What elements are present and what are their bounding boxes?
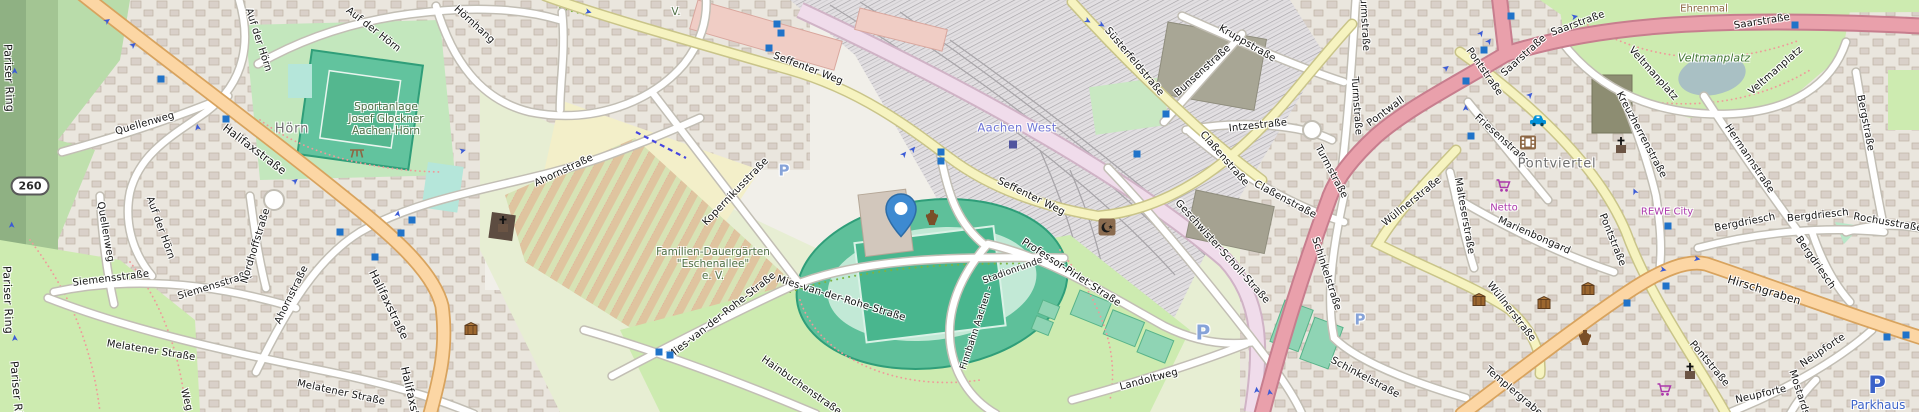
street-label: Claßenstraße: [1197, 129, 1251, 189]
street-label: Melatener Straße: [106, 338, 196, 363]
street-label: Ahornstraße: [533, 152, 595, 189]
street-label: Halifaxstraße: [366, 268, 411, 342]
transit-stop-marker: [1884, 334, 1891, 341]
oneway-arrow-icon: ➤: [9, 221, 18, 229]
street-label: Siemensstraße: [176, 269, 253, 303]
tower-icon: [1472, 292, 1486, 311]
street-label: Quellenweg: [114, 110, 176, 138]
transit-stop-marker: [766, 45, 773, 52]
street-label: Auf der Hörn: [242, 7, 273, 73]
area-label: V.: [671, 6, 680, 18]
transit-stop-marker: [1663, 283, 1670, 290]
transit-stop-marker: [1665, 223, 1672, 230]
area-label: Familien-Dauergärten "Eschenallee" e. V.: [656, 246, 770, 282]
station-dot-icon: [1009, 134, 1017, 153]
oneway-arrow-icon: ➤: [12, 67, 21, 75]
cinema-icon: [1520, 135, 1536, 154]
street-label: Finnbahn Aachen -: [959, 285, 996, 371]
oneway-arrow-icon: ➤: [128, 40, 140, 52]
street-label: Saarstraße: [1499, 33, 1549, 79]
place-label: Hörn: [275, 123, 309, 138]
oneway-arrow-icon: ➤: [394, 210, 404, 219]
oneway-arrow-icon: ➤: [1658, 266, 1667, 276]
street-label: Professor-Pirlet-Straße: [1019, 237, 1122, 310]
street-label: Hirschgraben: [1726, 274, 1802, 308]
church-icon: [1682, 362, 1698, 384]
tower-icon: [464, 321, 478, 340]
street-label: Stadionrunde: [982, 255, 1045, 286]
street-label: Wüllnerstraße: [1380, 175, 1444, 230]
street-label: Seffenter Weg: [771, 50, 844, 87]
street-label: Bergstraße: [1854, 94, 1876, 152]
street-label: Landoltweg: [1119, 367, 1180, 394]
street-label: Bergdriesch: [1787, 207, 1850, 225]
street-label: Mies-van-der-Rohe-Straße: [666, 270, 779, 362]
shop-label: Netto: [1490, 202, 1518, 214]
street-label: Templergraben: [1483, 365, 1550, 412]
street-label: Mostardstraße: [1786, 369, 1820, 412]
tower-icon: [1581, 281, 1595, 300]
map-pin-marker[interactable]: [883, 192, 919, 242]
street-label: Veltmanplatz: [1747, 44, 1806, 97]
oneway-arrow-icon: ➤: [1630, 186, 1641, 197]
oneway-arrow-icon: ➤: [1441, 63, 1453, 75]
memorial-label: Ehrenmal: [1680, 3, 1728, 15]
street-label: Schinkelstraße: [1309, 236, 1344, 312]
oneway-arrow-icon: ➤: [1253, 386, 1263, 394]
parking-label: Parkhaus: [1851, 399, 1906, 412]
street-label: Auf der Hörn: [343, 5, 402, 55]
street-label: Bergdriesch: [1793, 234, 1838, 291]
parking-label: P: [779, 162, 790, 179]
street-label: Marienbongard: [1496, 215, 1572, 257]
street-label: Pariser Ring: [0, 266, 15, 334]
transit-stop-marker: [1163, 111, 1170, 118]
oneway-arrow-icon: ➤: [458, 147, 468, 158]
street-label: Hainbuchenstraße: [759, 354, 843, 412]
transit-stop-marker: [409, 217, 416, 224]
street-label: Kruppstraße: [1217, 23, 1278, 65]
street-label: Halifaxstraße: [220, 122, 288, 178]
transit-stop-marker: [938, 149, 945, 156]
transit-stop-marker: [1792, 22, 1799, 29]
street-label: Wüllnerstraße: [1484, 280, 1538, 344]
amphora-icon: [925, 209, 939, 233]
transit-stop-marker: [667, 352, 674, 359]
street-label: Kreuzherrenstraße: [1613, 90, 1668, 180]
street-label: Nordhoffstraße: [239, 207, 273, 285]
street-label: Turmstraße: [1357, 0, 1372, 51]
transit-stop-marker: [1624, 300, 1631, 307]
street-label: Neupforte: [1798, 332, 1848, 371]
taxi-icon: [1529, 112, 1548, 131]
transit-stop-marker: [656, 349, 663, 356]
street-label: Bunsenstraße: [1173, 43, 1234, 99]
street-label: Pontwall: [1365, 95, 1407, 130]
transit-stop-marker: [1903, 332, 1910, 339]
street-label: Quellenweg: [94, 201, 116, 263]
parking-label: P: [1355, 311, 1366, 328]
amphora-icon: [1578, 329, 1592, 353]
oneway-arrow-icon: ➤: [1081, 16, 1092, 28]
transit-stop-marker: [337, 229, 344, 236]
place-label: Pontviertel: [1518, 158, 1597, 173]
street-label: Seffenter Weg: [995, 176, 1066, 219]
street-label: Halifaxstraße: [397, 366, 426, 412]
transit-stop-marker: [778, 30, 785, 37]
parking-label: P: [1196, 322, 1211, 345]
transit-stop-marker: [1134, 151, 1141, 158]
cart-icon: [1657, 382, 1672, 401]
street-label: Rochusstraße: [1852, 211, 1919, 235]
transit-stop-marker: [938, 158, 945, 165]
transit-stop-marker: [1508, 13, 1515, 20]
oneway-arrow-icon: ➤: [1570, 13, 1579, 23]
street-label: Siemensstraße: [72, 269, 150, 290]
street-label: Mies-van-der-Rohe-Straße: [775, 274, 907, 324]
transit-stop-marker: [398, 230, 405, 237]
street-label: Kopernikusstraße: [701, 156, 772, 229]
oneway-arrow-icon: ➤: [194, 123, 204, 132]
transit-stop-marker: [158, 76, 165, 83]
oneway-arrow-icon: ➤: [290, 176, 302, 188]
street-label: Ahornstraße: [273, 264, 311, 326]
oneway-arrow-icon: ➤: [1266, 388, 1276, 397]
tower-icon: [1537, 295, 1551, 314]
street-label: Schinkelstraße: [1329, 355, 1402, 401]
oneway-arrow-icon: ➤: [1525, 90, 1537, 102]
area-label: Sportanlage Josef Glockner Aachen-Hörn: [348, 101, 423, 137]
church-icon: [1613, 136, 1629, 158]
oneway-arrow-icon: ➤: [1463, 104, 1472, 112]
mosque-icon: [1099, 219, 1116, 240]
street-label: Pontstraße: [1596, 212, 1628, 268]
street-label: Claßenstraße: [1252, 179, 1318, 222]
oneway-arrow-icon: ➤: [102, 16, 113, 28]
street-label: Intzestraße: [1228, 117, 1288, 135]
street-label: Veltmanplatz: [1626, 45, 1680, 103]
transit-stop-marker: [774, 21, 781, 28]
street-label: Hörnhang: [451, 4, 496, 46]
street-label: Süsterfeldstraße: [1102, 25, 1166, 98]
street-label: Turmstraße: [1348, 76, 1364, 135]
map-overlay-layer: Auf der HörnAuf der HörnAuf der HörnHörn…: [0, 0, 1919, 412]
street-label: Malteserstraße: [1452, 177, 1477, 256]
oneway-arrow-icon: ➤: [583, 8, 593, 19]
transit-stop-marker: [223, 116, 230, 123]
station-label: Aachen West: [977, 121, 1056, 134]
street-label: Auf der Hörn: [143, 195, 176, 261]
parking-icon-label: P: [1868, 372, 1886, 400]
street-label: Pariser Ring: [7, 361, 26, 412]
cart-icon: [1496, 178, 1511, 197]
street-label: Turmstraße: [1312, 144, 1350, 201]
street-label: Pontstraße: [1463, 46, 1504, 98]
map-canvas[interactable]: Auf der HörnAuf der HörnAuf der HörnHörn…: [0, 0, 1919, 412]
picnic-icon: [349, 144, 365, 163]
oneway-arrow-icon: ➤: [11, 334, 21, 342]
church-icon: [495, 215, 511, 237]
transit-stop-marker: [372, 254, 379, 261]
street-label: Neupforte: [1734, 384, 1787, 407]
shop-label: REWE City: [1641, 206, 1693, 218]
street-label: Melatener Straße: [296, 378, 386, 408]
transit-stop-marker: [1468, 133, 1475, 140]
oneway-arrow-icon: ➤: [1095, 20, 1106, 32]
oneway-arrow-icon: ➤: [1693, 255, 1702, 265]
street-label: Weg: [178, 388, 195, 412]
street-label: Pariser Ring: [0, 44, 15, 112]
transit-stop-marker: [1481, 47, 1488, 54]
transit-stop-marker: [1463, 78, 1470, 85]
street-label: Geschwister-Scholl-Straße: [1172, 198, 1271, 307]
park-label: Veltmanplatz: [1678, 53, 1750, 66]
street-label: Saarstraße: [1733, 12, 1791, 32]
street-label: Bergdriesch: [1714, 211, 1777, 234]
street-label: Hermannstraße: [1722, 122, 1777, 195]
route-shield-260: 260: [11, 177, 50, 196]
